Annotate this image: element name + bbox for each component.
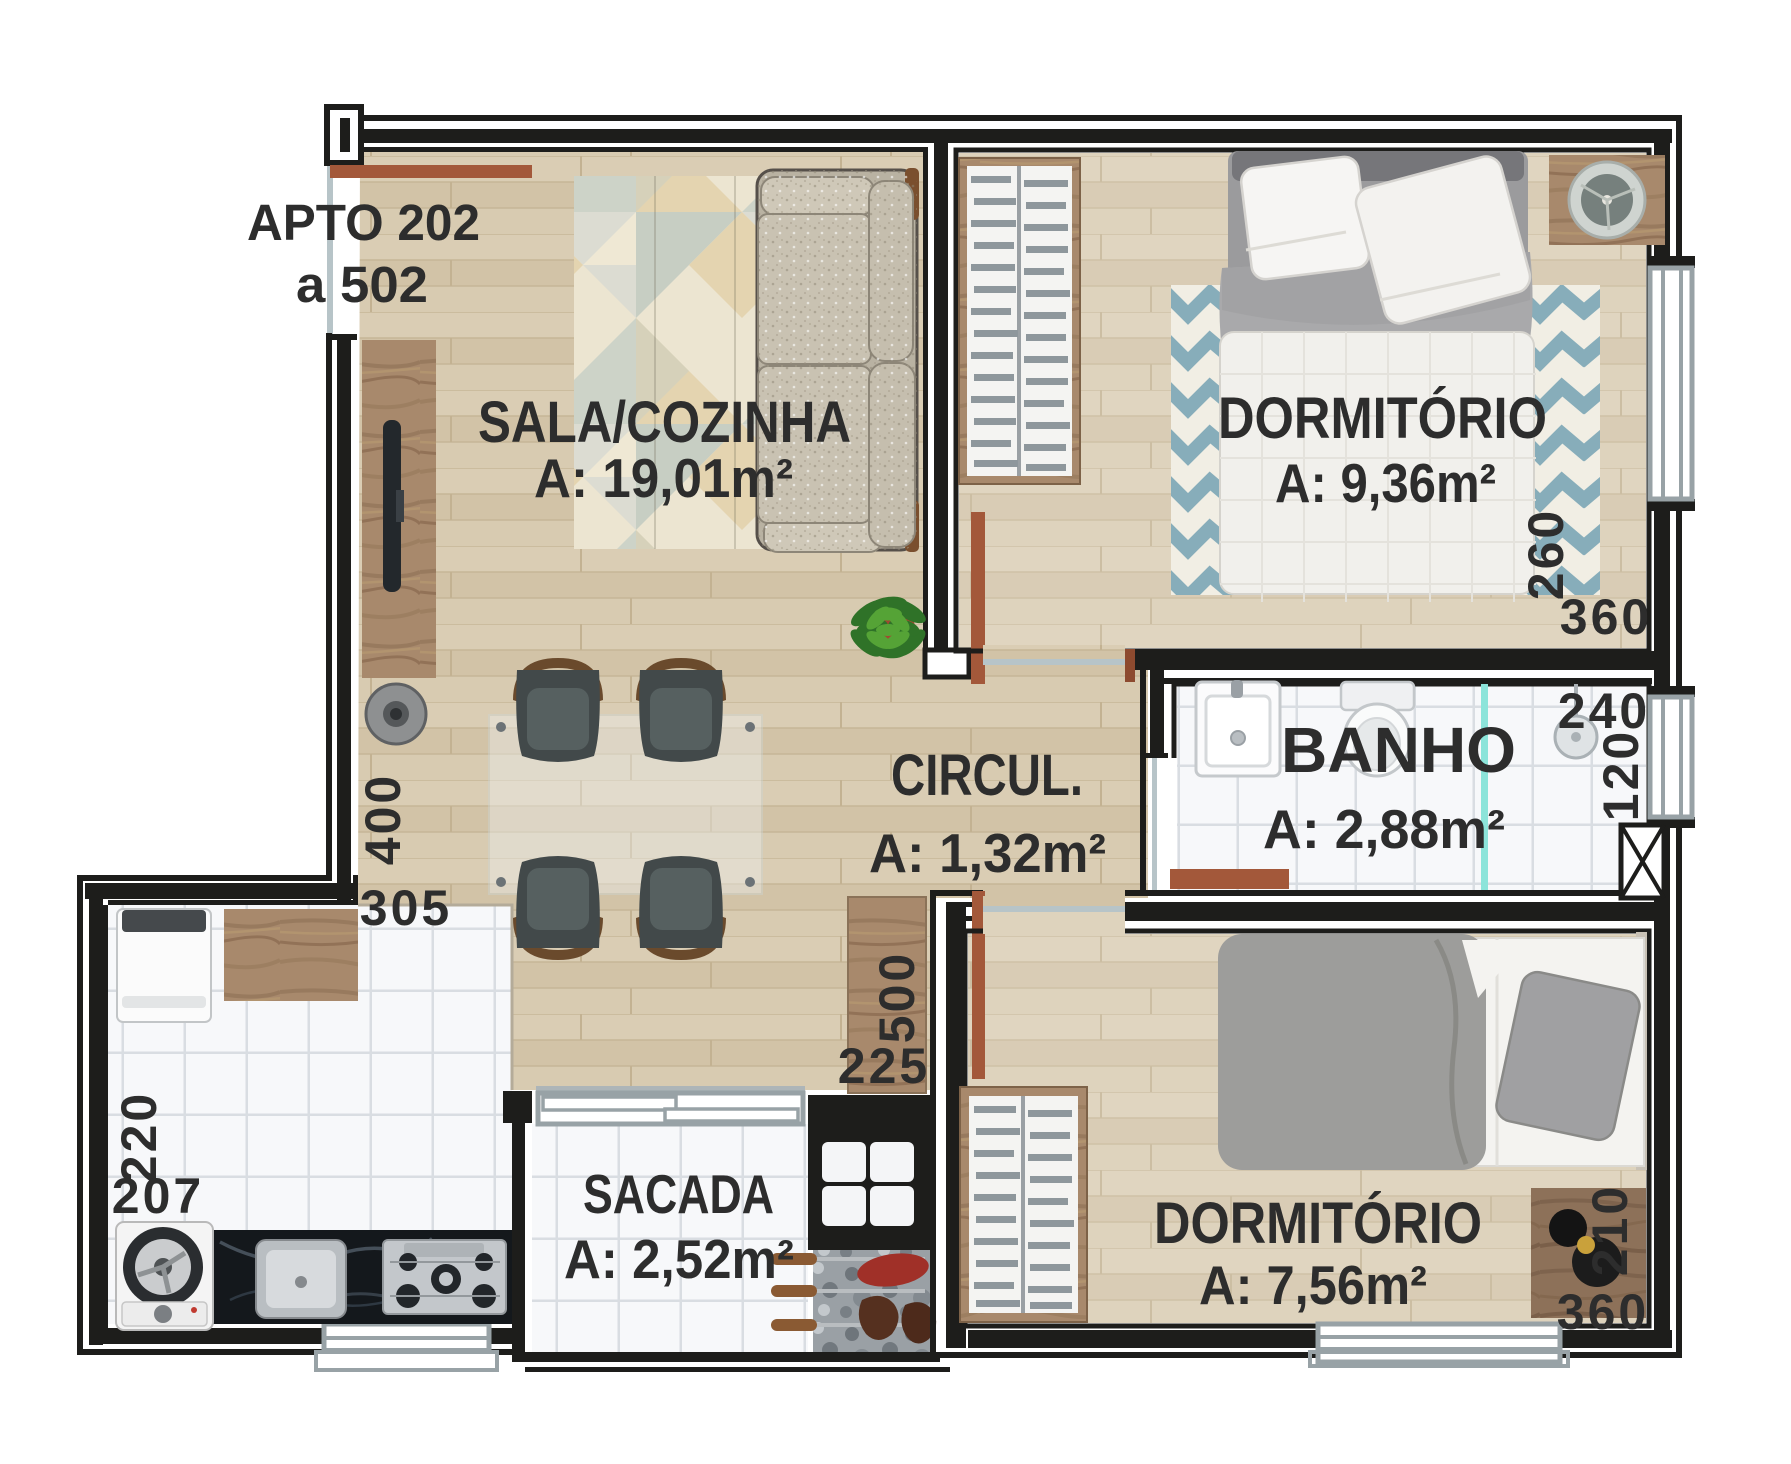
svg-text:APTO 202: APTO 202 (247, 194, 480, 251)
svg-text:CIRCUL.: CIRCUL. (891, 743, 1083, 808)
svg-text:A: 1,32m²: A: 1,32m² (869, 822, 1106, 884)
svg-text:305: 305 (360, 880, 452, 936)
svg-text:SACADA: SACADA (583, 1163, 774, 1225)
svg-text:a 502: a 502 (296, 256, 428, 313)
svg-text:A: 2,52m²: A: 2,52m² (564, 1228, 794, 1290)
svg-text:A: 2,88m²: A: 2,88m² (1263, 798, 1505, 860)
svg-text:DORMITÓRIO: DORMITÓRIO (1154, 1191, 1482, 1256)
svg-text:A: 7,56m²: A: 7,56m² (1199, 1254, 1427, 1316)
svg-text:400: 400 (355, 773, 411, 865)
svg-text:BANHO: BANHO (1281, 714, 1516, 786)
svg-text:A: 19,01m²: A: 19,01m² (534, 447, 793, 509)
svg-text:120: 120 (1593, 729, 1649, 821)
svg-text:207: 207 (112, 1168, 204, 1224)
svg-text:260: 260 (1518, 508, 1574, 600)
svg-text:SALA/COZINHA: SALA/COZINHA (478, 390, 851, 455)
svg-text:210: 210 (1582, 1184, 1638, 1276)
svg-text:500: 500 (869, 951, 925, 1043)
svg-text:225: 225 (838, 1038, 930, 1094)
svg-text:A: 9,36m²: A: 9,36m² (1275, 452, 1496, 514)
svg-text:DORMITÓRIO: DORMITÓRIO (1218, 386, 1547, 451)
svg-text:360: 360 (1557, 1284, 1649, 1340)
